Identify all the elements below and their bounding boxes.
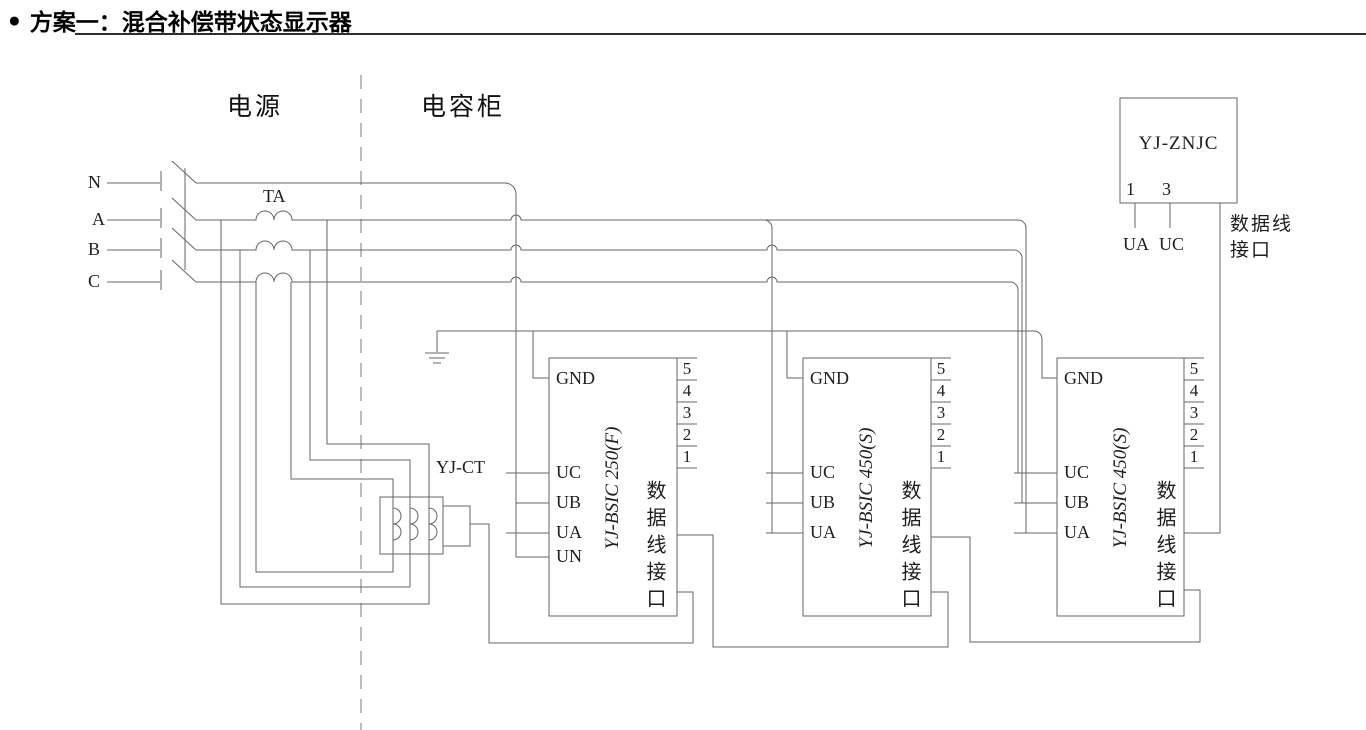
- znjc-model-label: YJ-ZNJC: [1120, 133, 1237, 155]
- ct-output-tab: [443, 506, 470, 546]
- box1-pin-un: UN: [556, 546, 582, 567]
- box1-pin-ua: UA: [556, 522, 582, 543]
- box3-voltage-stubs: [1014, 473, 1057, 533]
- box3-pin-1: 1: [1184, 447, 1204, 467]
- title-underline: [75, 33, 1366, 35]
- box1-model-label: YJ-BSIC 250(F): [602, 413, 624, 563]
- box2-pin-ub: UB: [810, 492, 835, 513]
- znjc-port-line2: 接口: [1230, 238, 1293, 264]
- box1-pin-2: 2: [677, 425, 697, 445]
- page-title: ● 方案一：混合补偿带状态显示器: [8, 3, 352, 37]
- ta-loop-c: [256, 282, 393, 572]
- box2-pin-1: 1: [931, 447, 951, 467]
- znjc-label-uc: UC: [1159, 234, 1184, 255]
- phase-label-a: A: [92, 209, 105, 230]
- box1-pin-gnd: GND: [556, 368, 595, 389]
- ground-symbol: [425, 331, 449, 363]
- box3-pin-uc: UC: [1064, 462, 1089, 483]
- ta-loop-a: [221, 220, 429, 604]
- box1-voltage-stubs: [506, 473, 549, 533]
- box1-pin-1: 1: [677, 447, 697, 467]
- znjc-pin-stubs: [1135, 203, 1170, 228]
- box1-pin-uc: UC: [556, 462, 581, 483]
- transformer-label: TA: [263, 186, 286, 207]
- box1-pin-4: 4: [677, 381, 697, 401]
- box2-model-label: YJ-BSIC 450(S): [856, 413, 878, 563]
- box2-pin-2: 2: [931, 425, 951, 445]
- ground-bus: [437, 331, 1057, 378]
- box2-pin-uc: UC: [810, 462, 835, 483]
- phase-label-c: C: [88, 271, 100, 292]
- phase-label-b: B: [88, 239, 100, 260]
- box1-port-label: 数据线接口: [640, 480, 669, 615]
- box2-port-label: 数据线接口: [895, 480, 924, 615]
- box2-pin-ua: UA: [810, 522, 836, 543]
- box3-port-label: 数据线接口: [1150, 480, 1179, 615]
- box3-pin-4: 4: [1184, 381, 1204, 401]
- phase-a-branch-box2: [764, 220, 772, 533]
- znjc-terminal-1: 1: [1126, 179, 1135, 200]
- box2-pin-gnd: GND: [810, 368, 849, 389]
- ta-loop-b: [240, 250, 410, 587]
- bullet-icon: ●: [8, 10, 21, 31]
- znjc-port-line1: 数据线: [1230, 212, 1293, 238]
- box3-pin-3: 3: [1184, 403, 1204, 423]
- box2-pin-4: 4: [931, 381, 951, 401]
- box1-pin-3: 3: [677, 403, 697, 423]
- box3-pin-ua: UA: [1064, 522, 1090, 543]
- page-title-text: 方案一：混合补偿带状态显示器: [30, 3, 352, 37]
- gnd-drop-box2: [787, 331, 803, 378]
- box3-pin-gnd: GND: [1064, 368, 1103, 389]
- znjc-port-label: 数据线 接口: [1230, 212, 1293, 264]
- phase-line-c: [107, 260, 1018, 473]
- zone-label-capacitor: 电容柜: [421, 87, 505, 123]
- gnd-drop-box1: [533, 331, 549, 378]
- ct-coils: [393, 508, 437, 540]
- box3-pin-2: 2: [1184, 425, 1204, 445]
- box1-pin-ub: UB: [556, 492, 581, 513]
- phase-label-n: N: [88, 172, 101, 193]
- znjc-terminal-3: 3: [1162, 179, 1171, 200]
- ct-unit-label: YJ-CT: [436, 457, 485, 478]
- box3-pin-5: 5: [1184, 359, 1204, 379]
- box3-model-label: YJ-BSIC 450(S): [1110, 413, 1132, 563]
- box3-pin-ub: UB: [1064, 492, 1089, 513]
- box2-pin-5: 5: [931, 359, 951, 379]
- box2-pin-3: 3: [931, 403, 951, 423]
- box1-pin-5: 5: [677, 359, 697, 379]
- zone-label-power: 电源: [227, 87, 283, 123]
- znjc-label-ua: UA: [1123, 234, 1149, 255]
